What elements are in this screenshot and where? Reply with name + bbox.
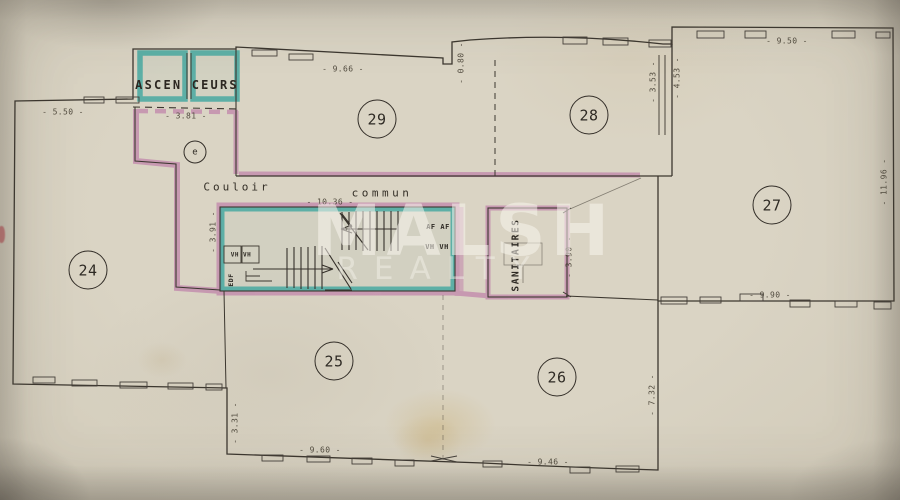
dim-11-96: - 11.96 - — [880, 159, 889, 206]
floorplan-drawing — [0, 0, 900, 500]
vent-af-label: AF AF — [426, 223, 450, 231]
room-circle-27: 27 — [753, 186, 792, 225]
dim-3-53: - 3.53 - — [649, 61, 658, 103]
vent-vh-left-label: VH VH — [231, 252, 252, 259]
dim-9-60: - 9.60 - — [299, 446, 341, 455]
dim-3-90: - 3.90 - — [565, 236, 574, 278]
edf-label: EDF — [227, 273, 235, 286]
dim-3-91: - 3.91 - — [209, 211, 218, 253]
corridor-label-1: Couloir — [203, 181, 270, 194]
room-circle-26: 26 — [538, 358, 577, 397]
room-circle-25: 25 — [315, 342, 354, 381]
dim-4-53: - 4.53 - — [673, 57, 682, 99]
elevators-label: ASCEN CEURS — [135, 78, 239, 92]
room-number: 28 — [579, 106, 598, 124]
vent-vh-right-label: VH VH — [425, 243, 449, 251]
dim-9-46: - 9.46 - — [527, 458, 569, 467]
room-circle-29: 29 — [358, 100, 397, 139]
dim-3-81: - 3.81 - — [165, 112, 207, 121]
room-circle-24: 24 — [69, 251, 108, 290]
floorplan-photo: - 5.50 - - 3.81 - - 9.66 - - 0.80 - - 9.… — [0, 0, 900, 500]
room-circle-28: 28 — [570, 96, 609, 135]
dim-10-36: - 10.36 - — [307, 198, 354, 207]
room-number: 24 — [78, 261, 97, 279]
dim-9-66: - 9.66 - — [322, 65, 364, 74]
room-number: 27 — [762, 196, 781, 214]
dim-7-32: - 7.32 - — [648, 374, 657, 416]
dim-3-31: - 3.31 - — [231, 402, 240, 444]
dim-0-80: - 0.80 - — [457, 42, 466, 84]
dim-5-50: - 5.50 - — [42, 108, 84, 117]
dim-9-90: - 9.90 - — [749, 291, 791, 300]
entrance-circle: e — [184, 141, 207, 164]
corridor-label-2: commun — [352, 187, 413, 200]
sanitary-label: SANITAIRES — [511, 218, 522, 291]
room-number: 25 — [324, 352, 343, 370]
room-number: 26 — [547, 368, 566, 386]
room-number: 29 — [367, 110, 386, 128]
entrance-label: e — [192, 147, 197, 157]
dim-9-50: - 9.50 - — [766, 37, 808, 46]
